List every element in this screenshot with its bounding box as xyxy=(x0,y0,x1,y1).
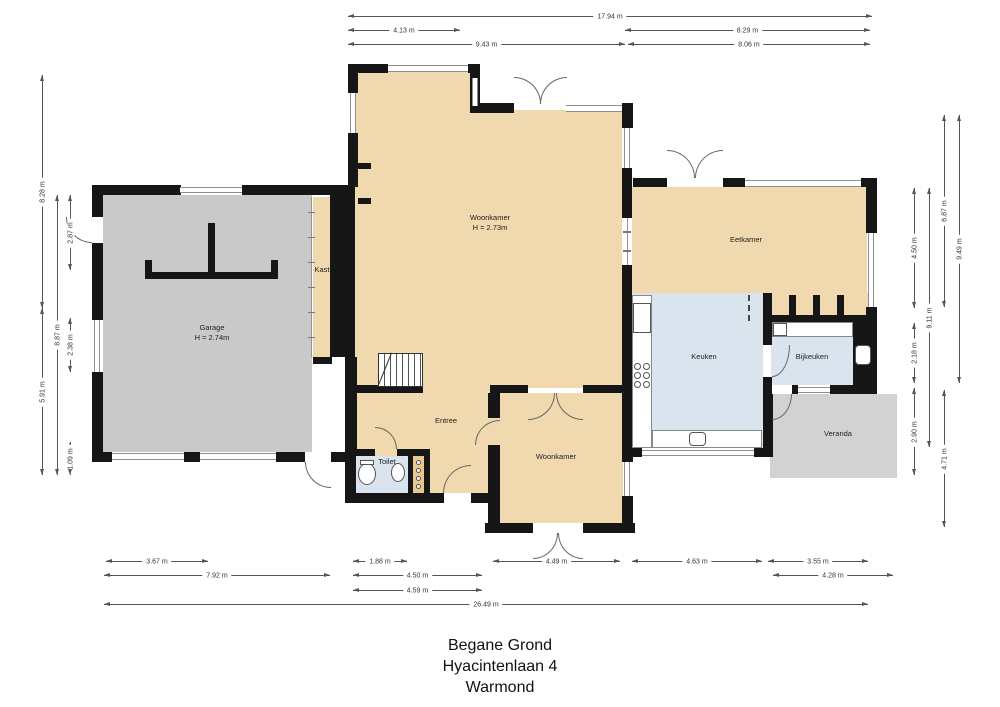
wall xyxy=(345,493,444,503)
window xyxy=(798,387,830,393)
kitchen-sink xyxy=(689,432,706,446)
window xyxy=(180,187,242,193)
meter xyxy=(416,460,421,465)
wall xyxy=(622,103,633,113)
title-block: Begane Grond Hyacintenlaan 4 Warmond xyxy=(0,635,1000,698)
wall xyxy=(490,385,528,393)
wall xyxy=(488,393,500,418)
wall xyxy=(866,187,877,233)
dimension: 4.50 m xyxy=(914,188,915,308)
wall xyxy=(754,448,763,457)
garage-partition xyxy=(145,260,152,272)
wall xyxy=(92,185,181,195)
wall xyxy=(92,243,103,320)
kast-tick xyxy=(308,337,315,338)
room-label-veranda: Veranda xyxy=(824,429,852,439)
dimension: 4.28 m xyxy=(773,575,893,576)
kast-tick xyxy=(308,262,315,263)
dimension: 8.87 m xyxy=(57,195,58,475)
stove-burner xyxy=(634,363,641,370)
toilet-tank xyxy=(360,460,374,465)
eetkamer-floor xyxy=(756,293,868,317)
wall xyxy=(632,448,642,457)
door-swing xyxy=(540,77,567,104)
kast-tick xyxy=(308,212,315,213)
wall xyxy=(184,452,200,462)
dimension: 7.92 m xyxy=(104,575,330,576)
city: Warmond xyxy=(0,677,1000,698)
wall xyxy=(358,163,371,169)
kitchen-counter xyxy=(652,430,762,448)
wall xyxy=(622,265,632,388)
wall xyxy=(830,385,877,394)
garage-door xyxy=(112,453,184,460)
window xyxy=(624,462,630,496)
dimension: 8.29 m xyxy=(625,30,870,31)
window xyxy=(868,233,874,307)
wall xyxy=(813,295,820,315)
window xyxy=(472,78,478,106)
woonkamer-floor xyxy=(356,71,471,115)
door-swing xyxy=(695,150,723,178)
dimension: 5.91 m xyxy=(42,308,43,475)
window xyxy=(388,65,468,72)
dimension: 4.13 m xyxy=(348,30,460,31)
refrigerator xyxy=(633,303,651,333)
dimension: 2.38 m xyxy=(70,318,71,372)
wall xyxy=(763,377,772,385)
divider-tick xyxy=(623,250,631,252)
wall xyxy=(408,449,413,493)
room-label-kast: Kast xyxy=(314,265,329,275)
window xyxy=(350,93,356,133)
wall xyxy=(633,178,667,187)
door-swing xyxy=(514,77,541,104)
kast-tick xyxy=(308,312,315,313)
dimension: 1.88 m xyxy=(353,561,407,562)
appliance xyxy=(773,323,787,336)
wall xyxy=(330,187,355,357)
stove-burner xyxy=(643,363,650,370)
kast-tick xyxy=(308,287,315,288)
room-label-keuken: Keuken xyxy=(691,352,716,362)
divider-tick xyxy=(623,231,631,233)
stove-burner xyxy=(634,381,641,388)
floor-plan: Begane Grond Hyacintenlaan 4 Warmond Woo… xyxy=(0,0,1000,707)
stove-burner xyxy=(643,372,650,379)
dimension: 6.87 m xyxy=(944,115,945,307)
dimension: 3.67 m xyxy=(106,561,208,562)
dimension: 4.63 m xyxy=(632,561,762,562)
wall xyxy=(92,195,103,217)
window xyxy=(566,105,622,112)
meter xyxy=(416,484,421,489)
window xyxy=(624,128,630,168)
bijkeuken-sink xyxy=(855,345,871,365)
room-label-woonkamer-main: WoonkamerH = 2.73m xyxy=(470,213,510,233)
wall xyxy=(622,113,633,128)
wall xyxy=(488,445,500,523)
wall xyxy=(92,372,103,462)
dimension: 2.90 m xyxy=(914,388,915,475)
wall xyxy=(313,357,332,364)
wall xyxy=(424,449,430,493)
stove-burner xyxy=(643,381,650,388)
garage-partition xyxy=(208,223,215,272)
stove-burner xyxy=(634,372,641,379)
dimension: 8.28 m xyxy=(42,75,43,308)
room-label-entree: Entree xyxy=(435,416,457,426)
wall xyxy=(276,452,305,462)
wall xyxy=(348,64,388,73)
dimension: 8.06 m xyxy=(628,44,870,45)
wall xyxy=(345,357,357,449)
wall xyxy=(763,315,855,322)
window xyxy=(745,180,861,187)
room-label-garage: GarageH = 2.74m xyxy=(195,323,230,343)
dimension: 4.71 m xyxy=(944,390,945,527)
toilet-bowl xyxy=(358,463,376,485)
address: Hyacintenlaan 4 xyxy=(0,656,1000,677)
dimension: 17.94 m xyxy=(348,16,872,17)
wall xyxy=(861,178,877,187)
wall xyxy=(837,295,844,315)
wall xyxy=(468,64,480,73)
wall xyxy=(763,293,772,345)
wall xyxy=(358,198,371,204)
dimension: 1.09 m xyxy=(70,442,71,475)
ceiling-beam-dashed xyxy=(748,295,750,321)
wall xyxy=(345,449,375,456)
dimension: 26.49 m xyxy=(104,604,868,605)
meter xyxy=(416,476,421,481)
kast-front-line xyxy=(311,197,312,357)
dimension: 2.87 m xyxy=(70,195,71,270)
dimension: 4.49 m xyxy=(493,561,620,562)
door-swing xyxy=(667,150,695,178)
wall xyxy=(763,385,772,394)
dimension: 9.49 m xyxy=(959,115,960,383)
wall xyxy=(348,133,358,187)
door-swing xyxy=(533,533,558,559)
floor-name: Begane Grond xyxy=(0,635,1000,656)
door-swing xyxy=(558,533,583,559)
meter xyxy=(416,468,421,473)
wall xyxy=(92,452,112,462)
room-label-bijkeuken: Bijkeuken xyxy=(796,352,829,362)
dimension: 9.11 m xyxy=(929,188,930,447)
wall xyxy=(348,73,358,93)
window xyxy=(642,450,754,456)
room-label-toilet: Toilet xyxy=(378,457,396,467)
garage-partition xyxy=(271,260,278,272)
garage-door xyxy=(200,453,276,460)
wall xyxy=(723,178,745,187)
window xyxy=(94,320,100,372)
room-label-eetkamer: Eetkamer xyxy=(730,235,762,245)
dimension: 9.43 m xyxy=(348,44,625,45)
wall xyxy=(789,295,796,315)
woonkamer-floor xyxy=(355,110,622,312)
dimension: 3.55 m xyxy=(768,561,868,562)
room-label-woonkamer-bottom: Woonkamer xyxy=(536,452,576,462)
garage-partition xyxy=(145,272,278,279)
wall xyxy=(622,168,632,218)
wall xyxy=(622,496,633,533)
dimension: 2.18 m xyxy=(914,323,915,383)
door-swing xyxy=(305,462,331,488)
kast-tick xyxy=(308,237,315,238)
room-divider xyxy=(627,218,628,265)
dimension: 4.50 m xyxy=(353,575,482,576)
dimension: 4.59 m xyxy=(353,590,482,591)
wall xyxy=(485,523,533,533)
